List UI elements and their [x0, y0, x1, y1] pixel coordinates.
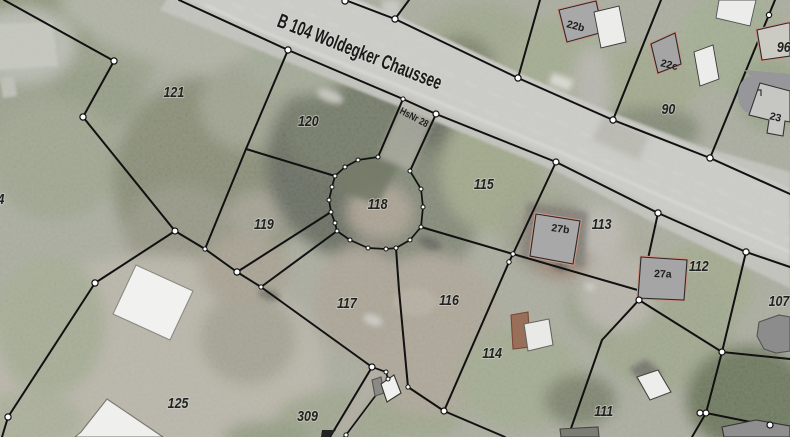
svg-text:117: 117 [337, 295, 358, 311]
svg-text:96: 96 [777, 39, 790, 55]
svg-text:111: 111 [594, 403, 613, 419]
svg-text:120: 120 [298, 113, 319, 129]
svg-text:113: 113 [592, 216, 612, 232]
svg-text:119: 119 [254, 216, 274, 232]
svg-text:114: 114 [482, 345, 502, 361]
svg-text:118: 118 [368, 196, 388, 212]
svg-text:125: 125 [168, 395, 189, 411]
svg-text:115: 115 [474, 176, 494, 192]
svg-text:27a: 27a [654, 268, 672, 281]
svg-text:107: 107 [769, 293, 790, 309]
svg-text:112: 112 [689, 258, 709, 274]
svg-text:27b: 27b [551, 222, 571, 236]
svg-text:309: 309 [297, 408, 318, 424]
svg-text:116: 116 [439, 292, 459, 308]
svg-text:121: 121 [164, 84, 185, 100]
svg-text:4: 4 [0, 191, 5, 207]
svg-text:90: 90 [662, 101, 676, 117]
